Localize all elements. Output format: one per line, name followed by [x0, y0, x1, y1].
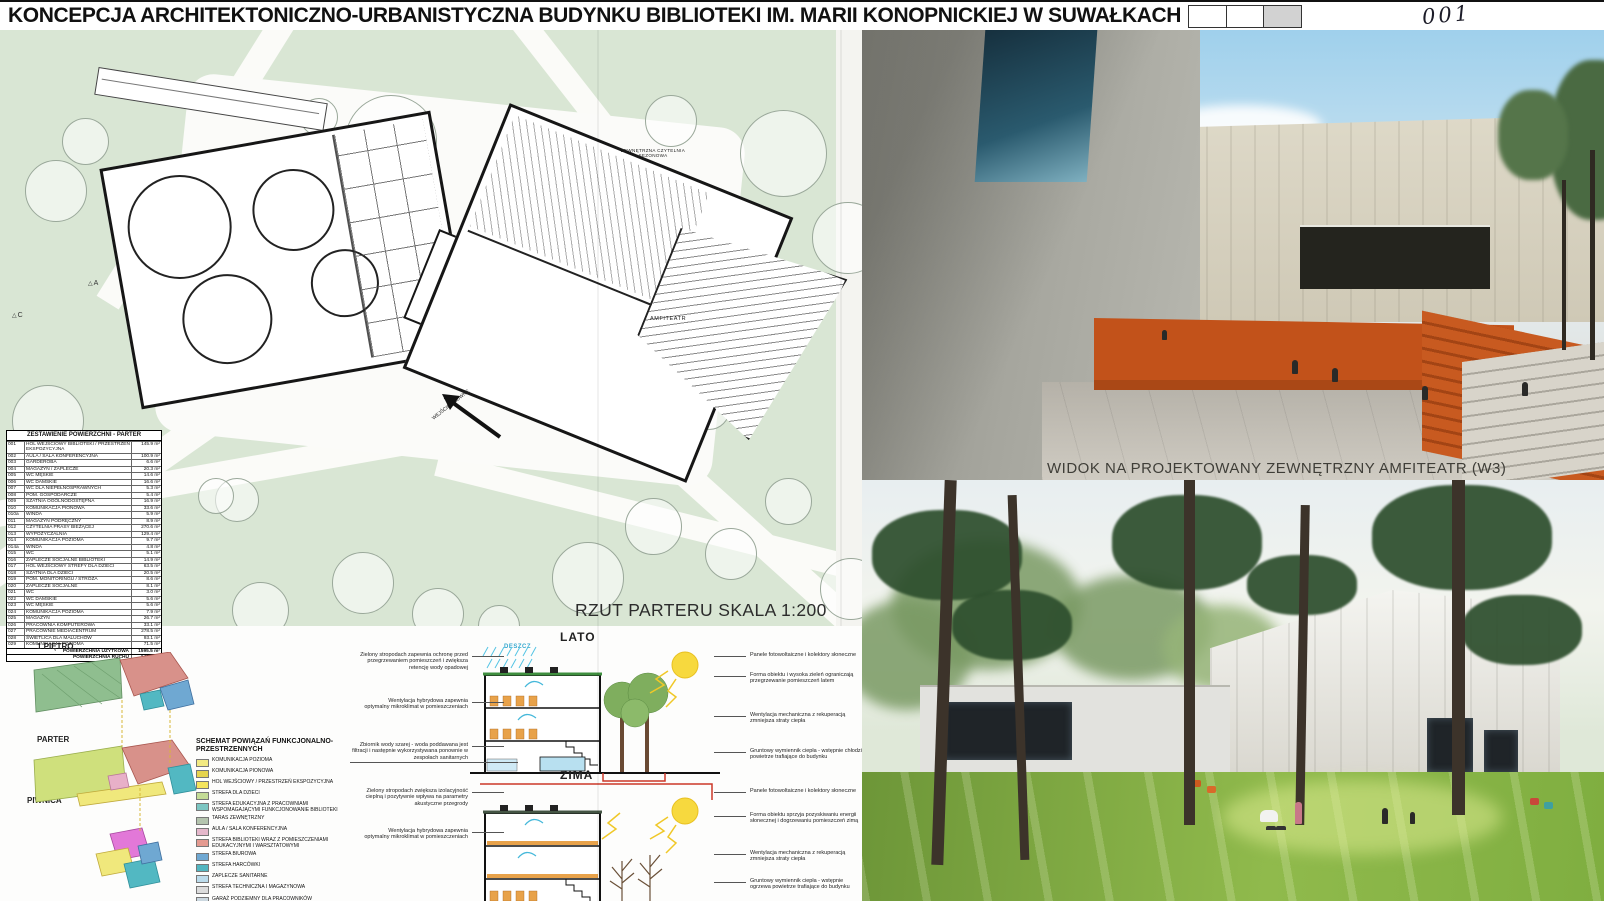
room-area: 14.9 m² — [132, 558, 161, 564]
room-id: 027 — [7, 629, 25, 635]
grass-highlights — [862, 772, 1604, 901]
room-id: 007 — [7, 486, 25, 492]
table-row: 014a WINDA 4.8 m² — [7, 544, 161, 551]
room-name: AULA / SALA KONFERENCYJNA — [25, 454, 132, 460]
room-area: 20.3 m² — [132, 467, 161, 473]
floor-label-first: 1 PIĘTRO — [37, 642, 73, 651]
tree — [740, 110, 827, 197]
legend-item: STREFA DLA DZIECI — [196, 791, 348, 800]
summer-section-drawing — [470, 645, 720, 785]
legend-item: HOL WEJŚCIOWY / PRZESTRZEŃ EKSPOZYCYJNA — [196, 780, 348, 789]
room-name: WINDA — [25, 512, 132, 518]
table-row: 009 SZATNIA OGÓLNODOSTĘPNA 16.9 m² — [7, 498, 161, 505]
room-name: WC — [25, 590, 132, 596]
person — [1410, 812, 1415, 824]
room-area: 5.6 m² — [132, 597, 161, 603]
room-id: 003 — [7, 460, 25, 466]
plan-caption: RZUT PARTERU SKALA 1:200 — [575, 600, 827, 621]
room-area: 9.7 m² — [132, 538, 161, 544]
annotation: Wentylacja hybrydowa zapewnia optymalny … — [362, 698, 468, 711]
room-name: PRACOWNIE MEDIACENTRUM — [25, 629, 132, 635]
table-row: 012 CZYTELNIA PRASY BIEŻĄCEJ 270.6 m² — [7, 524, 161, 531]
room-name: ZAPLECZE SOCJALNE BIBLIOTEKI — [25, 558, 132, 564]
person — [1332, 368, 1338, 382]
room-area: 16.6 m² — [132, 480, 161, 486]
room-id: 029 — [7, 642, 25, 648]
table-row: 029 KOMUNIKACJA POZIOMA 71.5 m² — [7, 641, 161, 648]
room-name: GARDEROBA — [25, 460, 132, 466]
annotation: Gruntowy wymiennik ciepła - wstępnie chł… — [750, 748, 862, 761]
room-area: 5.3 m² — [132, 486, 161, 492]
legend-label: STREFA BIBLIOTEKI WRAZ Z POMIESZCZENIAMI… — [212, 838, 348, 849]
legend-item: GARAŻ PODZIEMNY DLA PRACOWNIKÓW — [196, 897, 348, 901]
section-marker-c: C — [12, 312, 23, 319]
legend-item: KOMUNIKACJA POZIOMA — [196, 758, 348, 767]
pine-trunk — [1184, 480, 1195, 825]
colored-chair — [1530, 798, 1539, 805]
sun-icon — [602, 798, 698, 853]
room-name: ZAPLECZE SOCJALNE — [25, 584, 132, 590]
room-id: 013 — [7, 532, 25, 538]
legend-label: AULA / SALA KONFERENCYJNA — [212, 827, 287, 833]
room-name: HOL WEJŚCIOWY STREFY DLA DZIECI — [25, 564, 132, 570]
table-row: 019 POM. MONITORINGU / STRÓŻA 8.6 m² — [7, 576, 161, 583]
rain-icon — [483, 647, 536, 668]
room-id: 014 — [7, 538, 25, 544]
room-id: 017 — [7, 564, 25, 570]
heating-pipe — [480, 784, 712, 800]
room-id: 025 — [7, 616, 25, 622]
functional-scheme-diagram — [22, 652, 202, 901]
room-area: 7.9 m² — [132, 610, 161, 616]
render-caption: WIDOK NA PROJEKTOWANY ZEWNĘTRZNY AMFITEA… — [1047, 460, 1506, 477]
table-row: 015 WC 5.1 m² — [7, 550, 161, 557]
legend-label: STREFA DLA DZIECI — [212, 791, 260, 797]
winter-section-drawing — [470, 783, 720, 901]
room-id: 011 — [7, 519, 25, 525]
room-name: CZYTELNIA PRASY BIEŻĄCEJ — [25, 525, 132, 531]
legend-label: ZAPLECZE SANITARNE — [212, 874, 267, 880]
room-area: 5.6 m² — [132, 603, 161, 609]
table-row: 021 WC 3.0 m² — [7, 589, 161, 596]
winter-heading: ZIMA — [560, 768, 593, 782]
annotation: Zielony stropodach zapewnia ochronę prze… — [350, 652, 468, 671]
glass-facade — [975, 30, 1098, 182]
table-row: 018 SZATNIA DLA DZIECI 20.5 m² — [7, 570, 161, 577]
orange-accent — [1207, 786, 1216, 793]
room-area: 5.1 m² — [132, 551, 161, 557]
building-section — [483, 805, 602, 901]
table-row: 028 ŚWIETLICA DLA MALUCHÓW 93.1 m² — [7, 635, 161, 642]
entrance-arrow-icon — [420, 382, 510, 442]
room-id: 008 — [7, 493, 25, 499]
legend-item: STREFA EDUKACYJNA Z PRACOWNIAMI WSPOMAGA… — [196, 802, 348, 813]
room-id: 004 — [7, 467, 25, 473]
room-name: WYPOŻYCZALNIA — [25, 532, 132, 538]
bare-trees — [610, 855, 662, 901]
tree — [198, 478, 234, 514]
legend-title: SCHEMAT POWIĄZAŃ FUNKCJONALNO-PRZESTRZEN… — [196, 738, 348, 754]
room-name: WC — [25, 551, 132, 557]
amphitheater-label: AMFITEATR — [650, 316, 686, 322]
person — [1422, 386, 1428, 400]
legend-label: STREFA HARCÓWKI — [212, 863, 260, 869]
person — [1522, 382, 1528, 396]
legend-swatch — [196, 759, 209, 767]
table-row: 013 WYPOŻYCZALNIA 129.4 m² — [7, 531, 161, 538]
tree — [765, 478, 812, 525]
room-id: 001 — [7, 442, 25, 453]
room-id: 005 — [7, 473, 25, 479]
competition-board: KONCEPCJA ARCHITEKTONICZNO-URBANISTYCZNA… — [0, 0, 1604, 901]
room-name: WC MĘSKIE — [25, 473, 132, 479]
legend-label: STREFA BIUROWA — [212, 852, 256, 858]
annotation: Zielony stropodach zwiększa izolacyjność… — [350, 788, 468, 807]
table-row: 027 PRACOWNIE MEDIACENTRUM 278.5 m² — [7, 628, 161, 635]
room-area: 8.6 m² — [132, 577, 161, 583]
room-name: WC DLA NIEPEŁNOSPRAWNYCH — [25, 486, 132, 492]
room-id: 014a — [7, 545, 25, 551]
room-id: 012 — [7, 525, 25, 531]
legend-label: STREFA TECHNICZNA I MAGAZYNOWA — [212, 885, 305, 891]
room-id: 015 — [7, 551, 25, 557]
legend-label: KOMUNIKACJA PIONOWA — [212, 769, 273, 775]
area-table: ZESTAWIENIE POWIERZCHNI - PARTER 001 HOL… — [6, 430, 162, 662]
tree — [812, 202, 862, 274]
children-zone-pod — [175, 267, 279, 371]
tree — [332, 552, 394, 614]
tree — [625, 498, 682, 555]
room-area: 33.6 m² — [132, 506, 161, 512]
legend-item: STREFA BIBLIOTEKI WRAZ Z POMIESZCZENIAMI… — [196, 838, 348, 849]
room-id: 024 — [7, 610, 25, 616]
annotation: Panele fotowoltaiczne i kolektory słonec… — [750, 788, 862, 794]
room-id: 006 — [7, 480, 25, 486]
legend-item: STREFA TECHNICZNA I MAGAZYNOWA — [196, 885, 348, 894]
room-name: SZATNIA OGÓLNODOSTĘPNA — [25, 499, 132, 505]
room-area: 4.8 m² — [132, 545, 161, 551]
ground-floor-blocks — [34, 740, 196, 806]
room-id: 010a — [7, 512, 25, 518]
outdoor-reading-label: ZEWNĘTRZNA CZYTELNIA SEZONOWA — [616, 148, 690, 159]
room-area: 8.9 m² — [132, 519, 161, 525]
table-row: 003 GARDEROBA 6.6 m² — [7, 459, 161, 466]
tree-foliage — [1498, 90, 1568, 180]
table-row: 022 WC DAMSKIE 5.6 m² — [7, 596, 161, 603]
table-row: 011 MAGAZYN PODRĘCZNY 8.9 m² — [7, 518, 161, 525]
render-amphitheater-view: WIDOK NA PROJEKTOWANY ZEWNĘTRZNY AMFITEA… — [862, 30, 1604, 480]
area-table-body: 001 HOL WEJŚCIOWY BIBLIOTEKI / PRZESTRZE… — [7, 441, 161, 648]
scan-fold-line — [597, 30, 599, 901]
annotation: Forma obiektu i wysoka zieleń ograniczaj… — [750, 672, 862, 685]
leader-line — [350, 762, 518, 763]
person — [1295, 802, 1302, 824]
tree — [62, 118, 109, 165]
room-name: SZATNIA DLA DZIECI — [25, 571, 132, 577]
room-id: 019 — [7, 577, 25, 583]
terrace-recess — [1300, 225, 1490, 289]
room-id: 016 — [7, 558, 25, 564]
room-name: POM. GOSPODARCZE — [25, 493, 132, 499]
window — [1427, 718, 1473, 772]
render-park-view — [862, 480, 1604, 901]
tree — [232, 582, 289, 626]
room-area: 3.0 m² — [132, 590, 161, 596]
revision-cell — [1264, 6, 1301, 27]
room-area: 129.4 m² — [132, 532, 161, 538]
legend-item: ZAPLECZE SANITARNE — [196, 874, 348, 883]
ground-heat-exchanger-pipe — [603, 773, 665, 781]
room-name: MAGAZYN — [25, 616, 132, 622]
room-area: 6.6 m² — [132, 460, 161, 466]
room-area: 100.9 m² — [132, 454, 161, 460]
scheme-legend: SCHEMAT POWIĄZAŃ FUNKCJONALNO-PRZESTRZEN… — [196, 738, 348, 901]
room-area: 8.1 m² — [132, 584, 161, 590]
room-id: 026 — [7, 623, 25, 629]
title-bar: KONCEPCJA ARCHITEKTONICZNO-URBANISTYCZNA… — [0, 0, 1604, 34]
room-area: 5.4 m² — [132, 493, 161, 499]
room-name: KOMUNIKACJA POZIOMA — [25, 538, 132, 544]
page-title: KONCEPCJA ARCHITEKTONICZNO-URBANISTYCZNA… — [8, 4, 1181, 28]
legend-swatch — [196, 803, 209, 811]
person — [1292, 360, 1298, 374]
pine-foliage — [1462, 595, 1582, 665]
room-name: POM. MONITORINGU / STRÓŻA — [25, 577, 132, 583]
table-row: 002 AULA / SALA KONFERENCYJNA 100.9 m² — [7, 453, 161, 460]
table-row: 008 POM. GOSPODARCZE 5.4 m² — [7, 492, 161, 499]
legend-swatch — [196, 817, 209, 825]
room-id: 022 — [7, 597, 25, 603]
room-name: WC DAMSKIE — [25, 480, 132, 486]
room-name: WC MĘSKIE — [25, 603, 132, 609]
table-row: 010a WINDA 5.9 m² — [7, 511, 161, 518]
legend-item: KOMUNIKACJA PIONOWA — [196, 769, 348, 778]
area-table-title: ZESTAWIENIE POWIERZCHNI - PARTER — [7, 431, 161, 441]
room-area: 278.5 m² — [132, 629, 161, 635]
room-name: KOMUNIKACJA PIONOWA — [25, 506, 132, 512]
room-id: 009 — [7, 499, 25, 505]
legend-item: STREFA HARCÓWKI — [196, 863, 348, 872]
room-area: 20.5 m² — [132, 571, 161, 577]
room-area: 270.6 m² — [132, 525, 161, 531]
room-id: 023 — [7, 603, 25, 609]
pine-trunk — [1452, 480, 1465, 815]
room-area: 71.5 m² — [132, 642, 161, 648]
revision-cell — [1227, 6, 1265, 27]
room-area: 5.9 m² — [132, 512, 161, 518]
room-name: PRACOWNIA KOMPUTEROWA — [25, 623, 132, 629]
table-row: 020 ZAPLECZE SOCJALNE 8.1 m² — [7, 583, 161, 590]
tree — [25, 160, 87, 222]
annotation: Panele fotowoltaiczne i kolektory słonec… — [750, 652, 862, 658]
tree — [412, 588, 464, 626]
legend-item: AULA / SALA KONFERENCYJNA — [196, 827, 348, 836]
grass-meadow — [862, 772, 1604, 901]
legend-swatch — [196, 792, 209, 800]
legend-label: GARAŻ PODZIEMNY DLA PRACOWNIKÓW — [212, 897, 312, 901]
legend-swatch — [196, 853, 209, 861]
children-zone-pod — [119, 167, 239, 287]
building-section — [483, 667, 602, 773]
room-area: 93.1 m² — [132, 636, 161, 642]
room-name: WC DAMSKIE — [25, 597, 132, 603]
legend-label: HOL WEJŚCIOWY / PRZESTRZEŃ EKSPOZYCYJNA — [212, 780, 333, 786]
children-zone-pod — [246, 162, 341, 257]
annotation: Wentylacja mechaniczna z rekuperacją zmn… — [750, 712, 862, 725]
room-id: 010 — [7, 506, 25, 512]
annotation: Zbiornik wody szarej - woda poddawana je… — [350, 742, 468, 761]
table-row: 017 HOL WEJŚCIOWY STREFY DLA DZIECI 63.5… — [7, 563, 161, 570]
table-row: 023 WC MĘSKIE 5.6 m² — [7, 602, 161, 609]
window-band — [942, 702, 1072, 760]
tree-trunk — [1590, 150, 1595, 360]
table-row: 016 ZAPLECZE SOCJALNE BIBLIOTEKI 14.9 m² — [7, 557, 161, 564]
room-id: 020 — [7, 584, 25, 590]
revision-table — [1188, 5, 1302, 28]
legend-label: STREFA EDUKACYJNA Z PRACOWNIAMI WSPOMAGA… — [212, 802, 348, 813]
room-name: WINDA — [25, 545, 132, 551]
legend-swatch — [196, 875, 209, 883]
room-area: 14.6 m² — [132, 473, 161, 479]
legend-label: KOMUNIKACJA POZIOMA — [212, 758, 272, 764]
room-id: 002 — [7, 454, 25, 460]
legend-swatch — [196, 839, 209, 847]
table-row: 026 PRACOWNIA KOMPUTEROWA 33.1 m² — [7, 622, 161, 629]
room-name: ŚWIETLICA DLA MALUCHÓW — [25, 636, 132, 642]
annotation: Gruntowy wymiennik ciepła - wstępnie ogr… — [750, 878, 862, 891]
room-area: 16.9 m² — [132, 499, 161, 505]
room-id: 028 — [7, 636, 25, 642]
person — [1162, 330, 1167, 340]
room-area: 26.7 m² — [132, 616, 161, 622]
table-row: 005 WC MĘSKIE 14.6 m² — [7, 472, 161, 479]
table-row: 024 KOMUNIKACJA POZIOMA 7.9 m² — [7, 609, 161, 616]
person — [1382, 808, 1388, 824]
colored-chair — [1544, 802, 1553, 809]
legend-item: TARAS ZEWNĘTRZNY — [196, 816, 348, 825]
annotation: Wentylacja hybrydowa zapewnia optymalny … — [362, 828, 468, 841]
legend-label: TARAS ZEWNĘTRZNY — [212, 816, 264, 822]
basement-blocks — [96, 828, 162, 888]
room-name: MAGAZYN PODRĘCZNY — [25, 519, 132, 525]
table-row: 004 MAGAZYN / ZAPLECZE 20.3 m² — [7, 466, 161, 473]
first-floor-blocks — [34, 652, 194, 712]
table-row: 007 WC DLA NIEPEŁNOSPRAWNYCH 5.3 m² — [7, 485, 161, 492]
stroller — [1260, 810, 1278, 822]
legend-items: KOMUNIKACJA POZIOMA KOMUNIKACJA PIONOWA … — [196, 758, 348, 901]
legend-swatch — [196, 864, 209, 872]
legend-swatch — [196, 886, 209, 894]
legend-swatch — [196, 781, 209, 789]
room-name: MAGAZYN / ZAPLECZE — [25, 467, 132, 473]
table-row: 014 KOMUNIKACJA POZIOMA 9.7 m² — [7, 537, 161, 544]
scan-fold-line — [840, 30, 842, 626]
handwritten-sheet-number: 001 — [1421, 1, 1472, 29]
room-id: 021 — [7, 590, 25, 596]
room-area: 145.9 m² — [132, 442, 161, 453]
table-row: 006 WC DAMSKIE 16.6 m² — [7, 479, 161, 486]
section-marker-a: A — [88, 280, 98, 287]
tree-trunk — [1562, 180, 1566, 350]
tree — [478, 605, 520, 626]
summer-heading: LATO — [560, 630, 596, 644]
room-name: HOL WEJŚCIOWY BIBLIOTEKI / PRZESTRZEŃ EK… — [25, 442, 132, 453]
tree — [645, 95, 697, 147]
annotation: Wentylacja mechaniczna z rekuperacją zmn… — [750, 850, 862, 863]
table-row: 025 MAGAZYN 26.7 m² — [7, 615, 161, 622]
heated-floor-band — [487, 874, 598, 878]
table-row: 001 HOL WEJŚCIOWY BIBLIOTEKI / PRZESTRZE… — [7, 441, 161, 453]
room-id: 018 — [7, 571, 25, 577]
heated-floor-band — [487, 841, 598, 845]
tree — [705, 528, 757, 580]
room-name: KOMUNIKACJA POZIOMA — [25, 610, 132, 616]
room-area: 33.1 m² — [132, 623, 161, 629]
legend-swatch — [196, 770, 209, 778]
table-row: 010 KOMUNIKACJA PIONOWA 33.6 m² — [7, 505, 161, 512]
annotation: Forma obiektu sprzyja pozyskiwaniu energ… — [750, 812, 862, 825]
revision-cell — [1189, 6, 1227, 27]
legend-item: STREFA BIUROWA — [196, 852, 348, 861]
room-area: 63.5 m² — [132, 564, 161, 570]
legend-swatch — [196, 828, 209, 836]
legend-swatch — [196, 897, 209, 901]
window — [1484, 730, 1518, 772]
